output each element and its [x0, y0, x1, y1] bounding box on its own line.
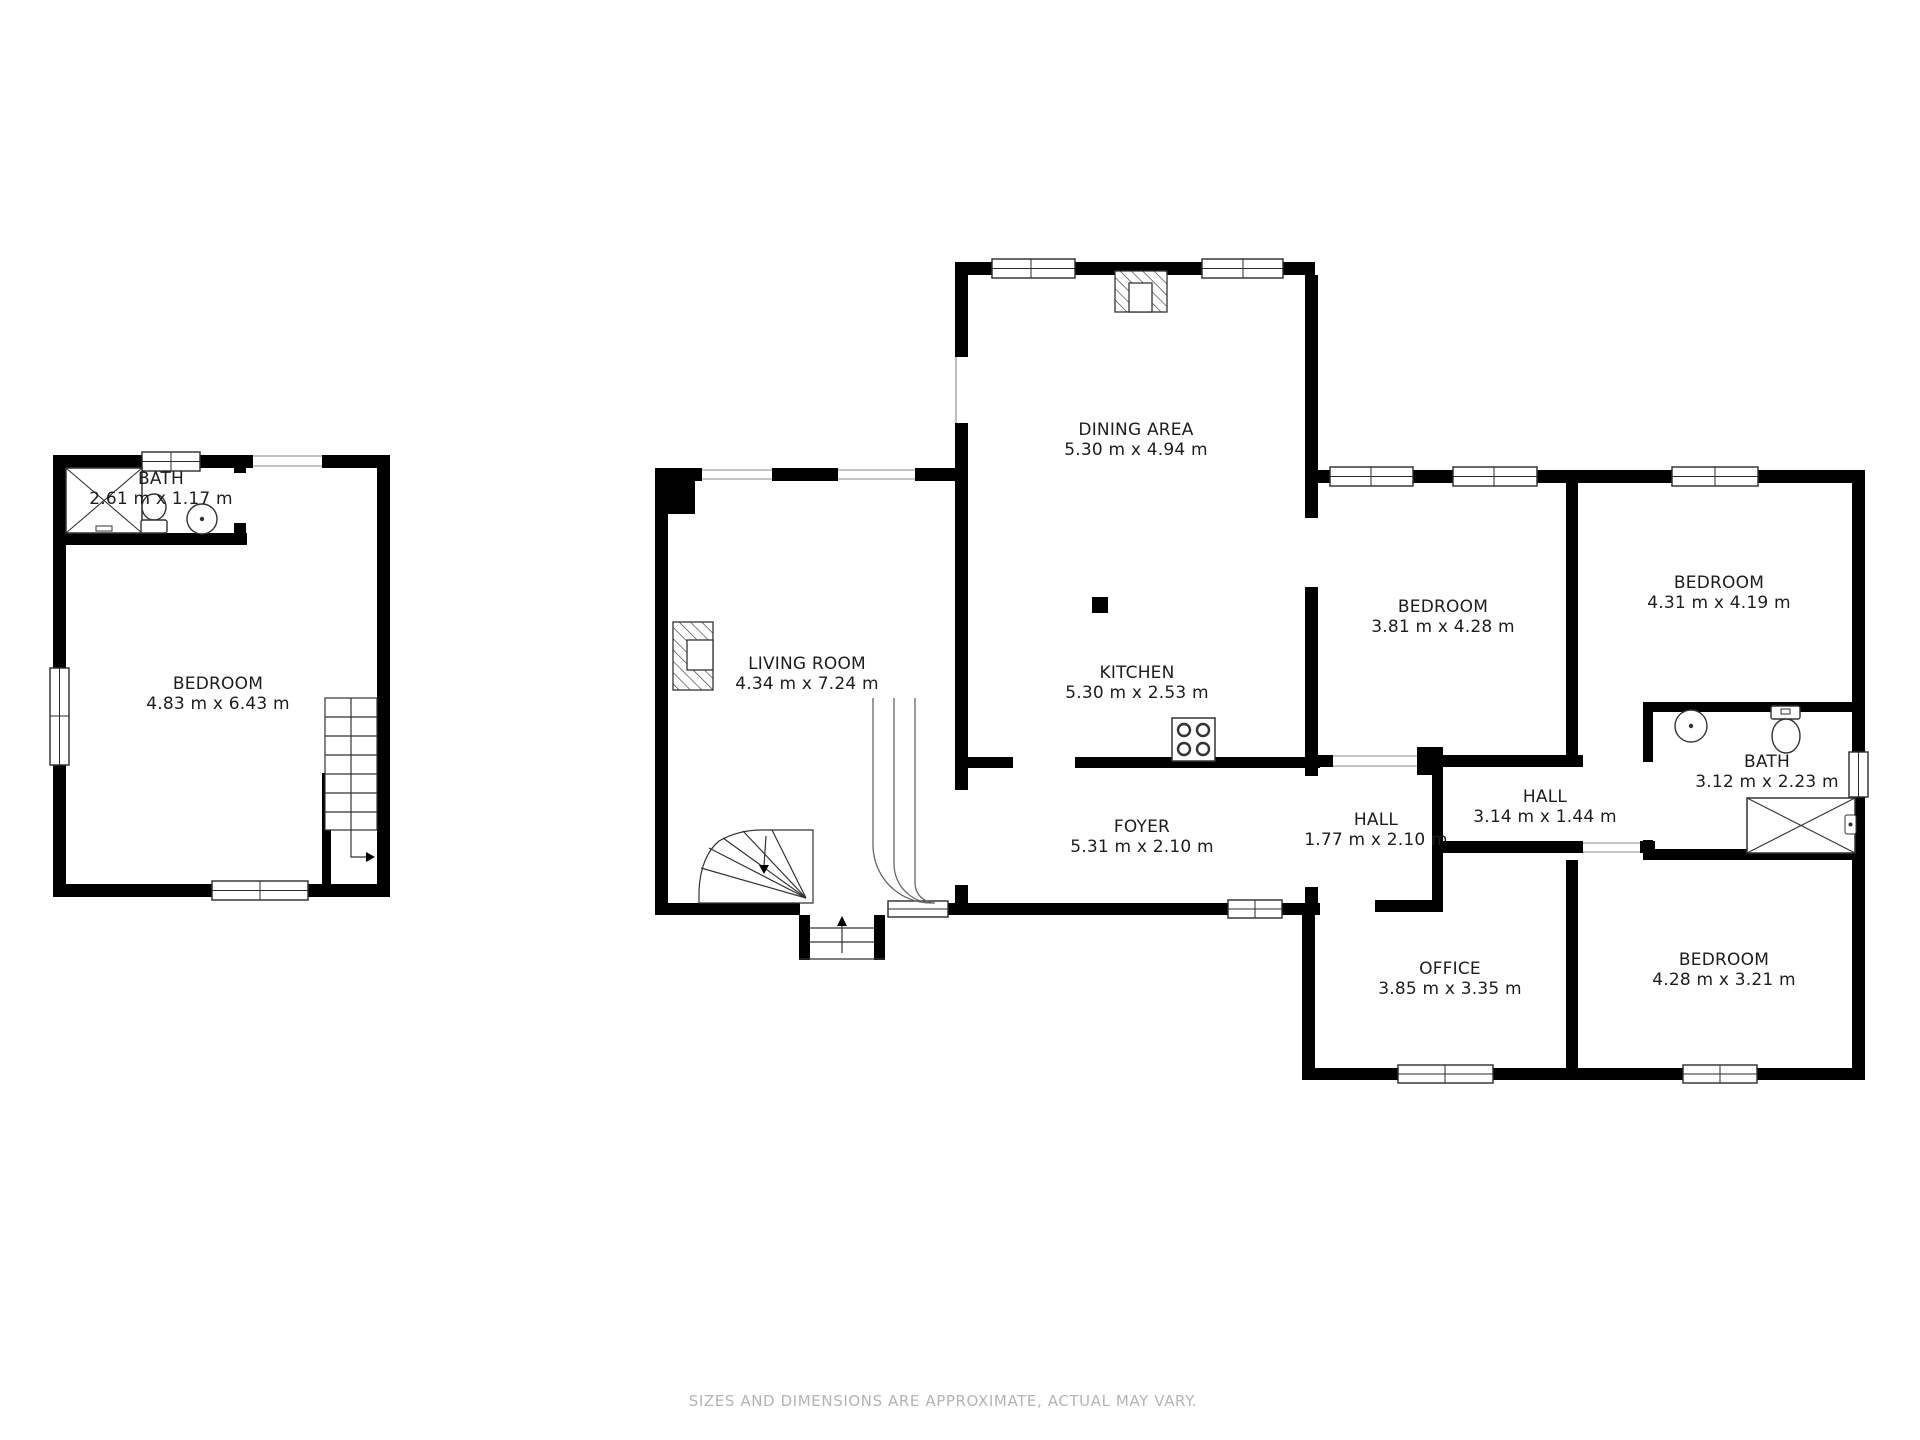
window [1672, 467, 1758, 486]
window [50, 668, 69, 765]
up-arrow-icon [837, 916, 847, 926]
curved-partition-lines [873, 698, 935, 903]
floor-plan-canvas [0, 0, 1920, 1440]
room-label-dining-area: DINING AREA5.30 m x 4.94 m [1064, 420, 1208, 460]
fireplace-icon [673, 622, 713, 690]
entry-steps-icon [799, 916, 885, 959]
window [212, 881, 308, 900]
right-arrow-icon [366, 852, 375, 862]
room-label-hall-small: HALL1.77 m x 2.10 m [1304, 810, 1448, 850]
room-label-office: OFFICE3.85 m x 3.35 m [1378, 959, 1522, 999]
chimney-icon [1115, 271, 1167, 312]
room-label-bath-upper-unit: BATH2.61 m x 1.17 m [89, 469, 233, 509]
window [992, 259, 1075, 278]
walls-layer [53, 262, 1865, 1080]
winder-stairs-icon [699, 830, 813, 903]
entry-sidelight-window [888, 901, 948, 917]
window [1849, 752, 1868, 797]
kitchen-duct-icon [1092, 597, 1108, 613]
bathtub-icon [1747, 798, 1856, 853]
room-label-bedroom-top-right: BEDROOM4.31 m x 4.19 m [1647, 573, 1791, 613]
room-label-living-room: LIVING ROOM4.34 m x 7.24 m [735, 654, 879, 694]
disclaimer-text: SIZES AND DIMENSIONS ARE APPROXIMATE, AC… [689, 1392, 1197, 1410]
window [1228, 900, 1282, 918]
room-label-bath-right: BATH3.12 m x 2.23 m [1695, 752, 1839, 792]
window [1453, 467, 1537, 486]
floor-plan-page: BATH2.61 m x 1.17 m BEDROOM4.83 m x 6.43… [0, 0, 1920, 1440]
stairs-icon [325, 698, 377, 862]
window [1683, 1065, 1757, 1083]
sink-icon [1675, 710, 1707, 742]
room-label-bedroom-middle: BEDROOM3.81 m x 4.28 m [1371, 597, 1515, 637]
toilet-icon [1771, 706, 1800, 753]
window [1202, 259, 1283, 278]
room-label-bedroom-bottom-right: BEDROOM4.28 m x 3.21 m [1652, 950, 1796, 990]
window [1330, 467, 1413, 486]
room-label-hall-long: HALL3.14 m x 1.44 m [1473, 787, 1617, 827]
room-label-bedroom-upper-unit: BEDROOM4.83 m x 6.43 m [146, 674, 290, 714]
cooktop-icon [1172, 718, 1215, 761]
window [1398, 1065, 1493, 1083]
room-label-kitchen: KITCHEN5.30 m x 2.53 m [1065, 663, 1209, 703]
room-label-foyer: FOYER5.31 m x 2.10 m [1070, 817, 1214, 857]
